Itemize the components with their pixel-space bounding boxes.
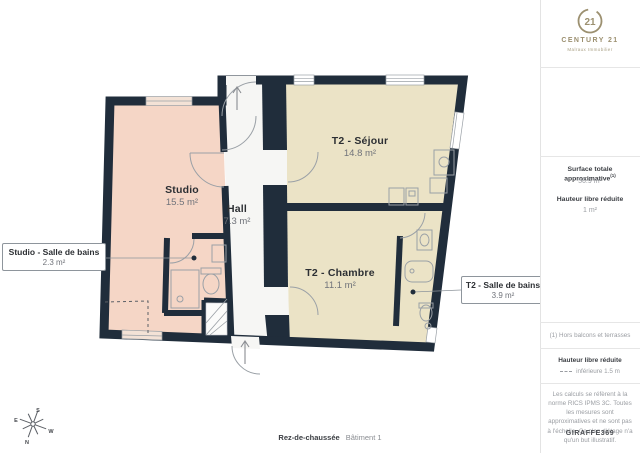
sidebar-divider <box>540 383 640 384</box>
compass-s-label: S <box>36 408 40 414</box>
footnote: (1) Hors balcons et terrasses <box>542 332 638 339</box>
century21-logo-icon: 21 <box>558 6 622 36</box>
compass-e-label: E <box>14 418 18 424</box>
brand-tagline: Malraux Immobilier <box>542 47 638 52</box>
sidebar-divider <box>540 348 640 349</box>
floor-name: Rez-de-chaussée <box>278 433 339 442</box>
surface-total-value: 56.9 m² <box>542 178 638 185</box>
reduced-height-value: 1 m² <box>542 207 638 214</box>
compass-n-label: N <box>25 440 29 446</box>
floor-caption: Rez-de-chausséeBâtiment 1 <box>230 433 430 442</box>
callout-t2-bathroom: T2 - Salle de bains 3.9 m² <box>461 276 545 304</box>
compass-icon: S E W N <box>14 406 54 446</box>
legend-title: Hauteur libre réduite <box>542 357 638 364</box>
legend-value: inférieure 1.5 m <box>576 368 620 375</box>
stairs-hatch <box>206 299 227 335</box>
sidebar-divider <box>540 322 640 323</box>
sidebar-divider <box>540 67 640 68</box>
legend-row: inférieure 1.5 m <box>542 368 638 375</box>
callout-studio-bathroom: Studio - Salle de bains 2.3 m² <box>2 243 106 271</box>
reference-code: GIRAFFE369 <box>542 430 638 437</box>
brand-name: CENTURY 21 <box>542 37 638 44</box>
floorplan-page: S E W N T2 - Séjour 14.8 m² Studio 15.5 … <box>0 0 640 453</box>
reduced-height-label: Hauteur libre réduite <box>542 196 638 203</box>
dashed-line-icon <box>560 371 572 372</box>
sidebar-divider <box>540 156 640 157</box>
compass-w-label: W <box>48 429 54 435</box>
building-name: Bâtiment 1 <box>346 433 382 442</box>
logo-number: 21 <box>584 17 596 28</box>
